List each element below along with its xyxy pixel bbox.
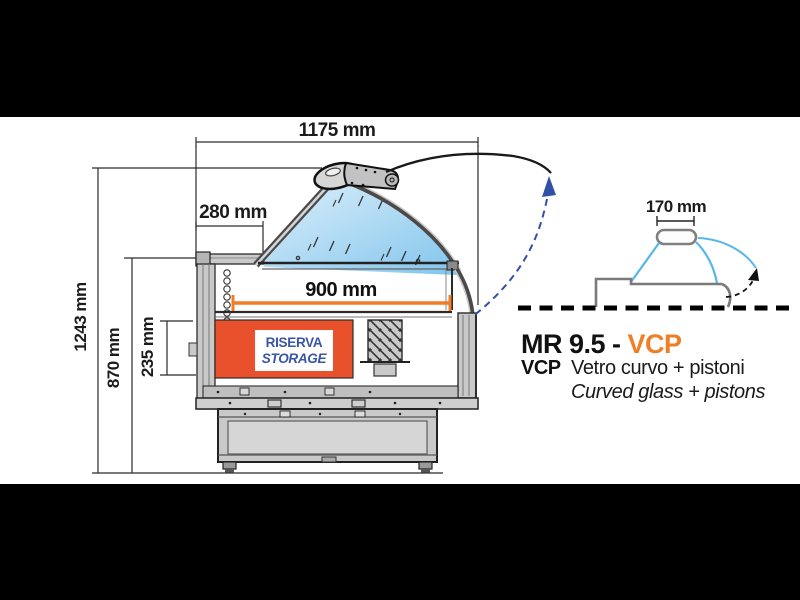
letterbox-top xyxy=(0,0,800,117)
front-bumper xyxy=(458,313,476,398)
base-panel xyxy=(228,421,427,454)
unit-pedestal xyxy=(374,364,396,376)
letterbox-bottom xyxy=(0,484,800,600)
model-title-prefix: MR 9.5 - xyxy=(521,329,628,359)
dim-counter-height: 870 mm xyxy=(104,327,123,388)
model-title-suffix: VCP xyxy=(628,329,683,359)
hatched-unit xyxy=(368,320,402,362)
model-title: MR 9.5 - VCP xyxy=(521,329,682,359)
model-description-en: Curved glass + pistons xyxy=(571,381,765,403)
dim-back-depth: 280 mm xyxy=(199,202,267,223)
model-description-it: Vetro curvo + pistoni xyxy=(571,357,744,379)
glass-handle xyxy=(657,230,696,244)
storage-label-line2: STORAGE xyxy=(262,351,328,366)
dim-display-width: 900 mm xyxy=(305,279,377,301)
model-code: VCP xyxy=(521,357,561,379)
dim-total-width: 1175 mm xyxy=(299,120,376,141)
storage-label-line1: RISERVA xyxy=(266,335,323,350)
product-spec-sheet: 1175 mm 280 mm 1243 mm 870 mm 235 mm xyxy=(0,0,800,600)
technical-drawing-canvas: 1175 mm 280 mm 1243 mm 870 mm 235 mm xyxy=(0,0,800,600)
base-ledge xyxy=(196,398,478,409)
dim-storage-height: 235 mm xyxy=(138,316,157,377)
dim-handle-width: 170 mm xyxy=(646,197,707,216)
back-bracket xyxy=(189,343,197,356)
dim-total-height: 1243 mm xyxy=(71,282,90,352)
